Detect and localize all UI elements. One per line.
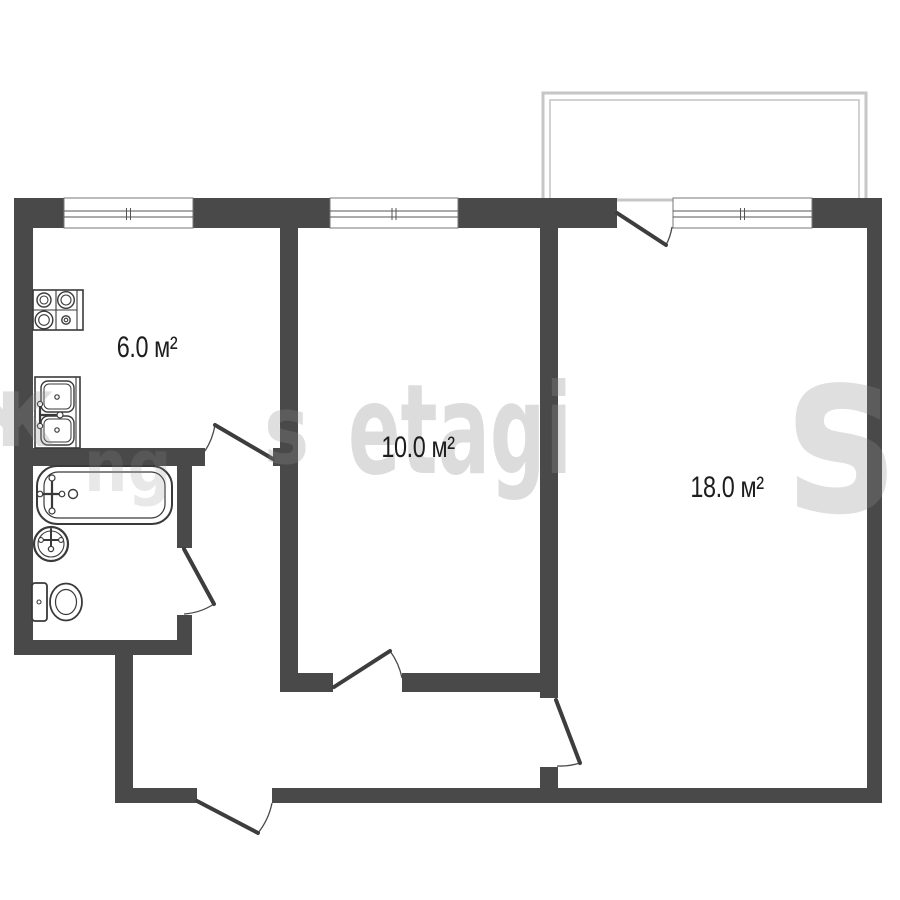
bathtub: [37, 466, 172, 524]
kitchen-sink-part-6: [44, 419, 71, 442]
kitchen-sink-part-3: [44, 384, 71, 409]
kitchen-door-arc: [205, 425, 215, 451]
kitchen-door-panel: [215, 425, 273, 459]
wash-basin-part-6: [48, 546, 53, 551]
kitchen-sink-part-10: [37, 423, 42, 428]
bathroom-door-arc: [184, 604, 214, 614]
kitchen-bath-wall: [14, 448, 205, 466]
room10-door-arc: [390, 651, 402, 678]
bath-right-wall-upper: [177, 466, 192, 548]
kitchen-sink: [35, 377, 80, 448]
room18-door-panel: [556, 700, 580, 763]
entry-door-panel: [197, 801, 258, 833]
balcony-window: [673, 198, 812, 228]
room10-bottom-wall-right: [402, 673, 558, 692]
room10-bottom-wall-left: [298, 673, 333, 692]
hall-left-wall: [115, 655, 133, 788]
bath-bottom-wall: [14, 640, 192, 655]
room18-door-stub: [540, 767, 558, 788]
room-label-room18: 18.0 м²: [690, 471, 763, 505]
wash-basin: [34, 527, 68, 561]
wash-basin-part-5: [59, 538, 64, 543]
bathtub-part-6: [37, 491, 43, 497]
toilet-part-3: [56, 590, 77, 615]
stove: [33, 290, 83, 330]
bottom-wall-right: [272, 788, 882, 803]
floorplan-page: жngsetagis 6.0 м² 10.0 м² 18.0 м²: [0, 0, 900, 900]
bathtub-part-3: [49, 475, 55, 481]
room-label-room10: 10.0 м²: [381, 431, 454, 465]
balcony-door-arc: [666, 227, 672, 245]
kitchen-sink-part-12: [57, 412, 63, 418]
wash-basin-part-4: [39, 538, 44, 543]
toilet-part-0: [32, 583, 47, 621]
balcony-inner-rail: [550, 100, 859, 200]
bathtub-part-7: [59, 491, 65, 497]
room10-window: [330, 198, 458, 228]
top-wall-seg-2: [193, 198, 330, 228]
left-outer-wall: [14, 198, 33, 655]
kitchen-window: [64, 198, 193, 228]
kitchen-room10-wall: [280, 228, 298, 692]
bottom-wall-left: [115, 788, 197, 803]
bathroom-door-panel: [184, 549, 214, 604]
balcony-door-panel: [617, 213, 666, 245]
kitchen-sink-part-9: [37, 401, 42, 406]
balcony-outer-rail: [543, 93, 866, 200]
right-outer-wall: [867, 198, 882, 803]
room18-door-arc: [557, 763, 580, 766]
bathtub-part-4: [49, 508, 55, 514]
bathtub-part-8: [69, 490, 78, 499]
top-wall-seg-3: [458, 198, 617, 228]
entry-door-arc: [258, 803, 272, 833]
bath-right-wall-lower: [177, 615, 192, 655]
toilet: [32, 583, 82, 621]
room-label-kitchen: 6.0 м²: [117, 331, 178, 365]
room10-room18-wall: [540, 228, 558, 698]
room10-door-panel: [334, 651, 390, 687]
